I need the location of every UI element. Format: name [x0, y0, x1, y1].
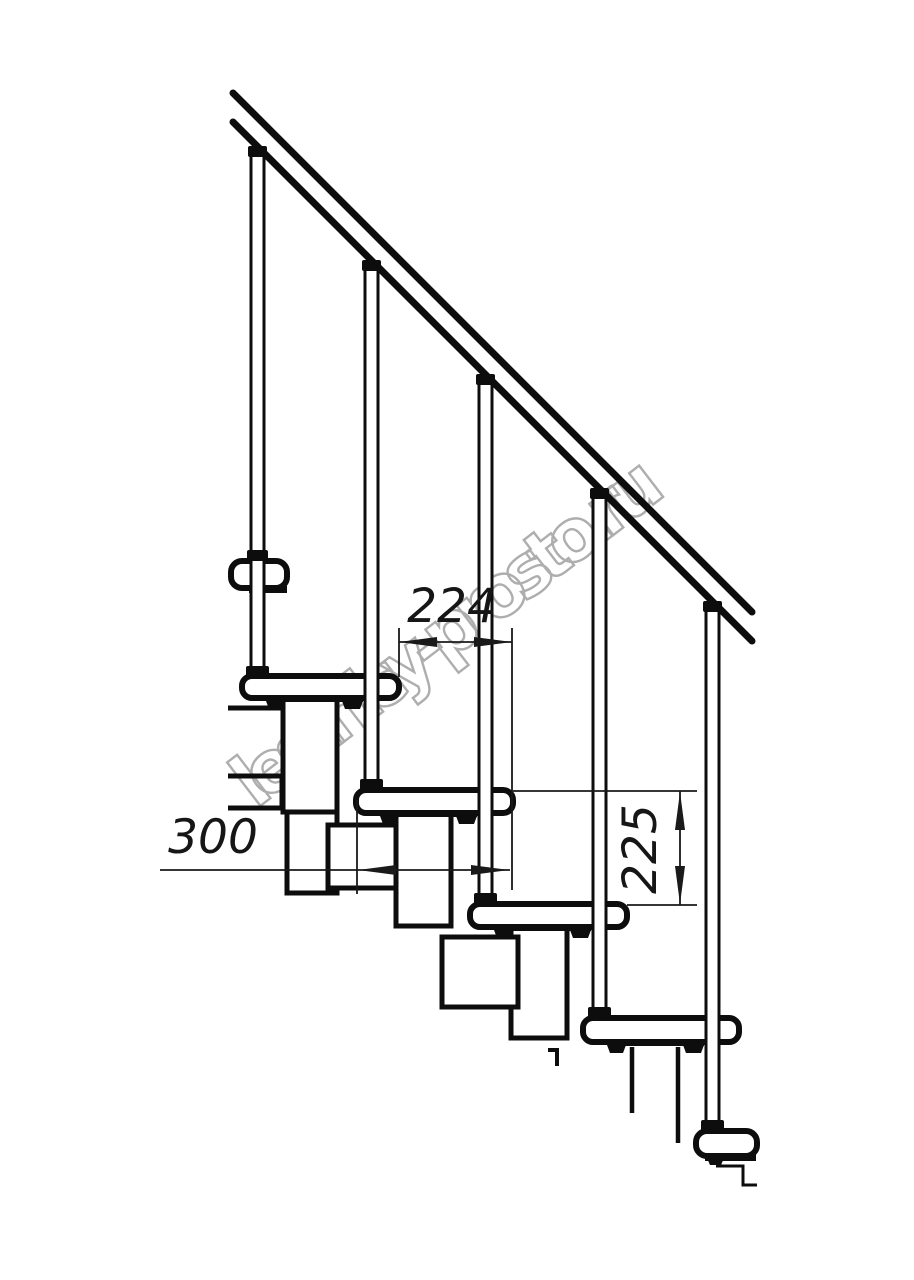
staircase-drawing: lestnicy-prosto.ru — [0, 0, 914, 1280]
dimension-225-label: 225 — [613, 804, 668, 894]
baluster-1 — [251, 150, 264, 677]
drawing-canvas: lestnicy-prosto.ru — [0, 0, 914, 1280]
floor-block — [696, 1131, 757, 1156]
baluster-5 — [706, 605, 719, 1132]
module-below-step5 — [632, 1047, 678, 1143]
dimension-224-label: 224 — [407, 579, 497, 634]
arrow-up-icon — [675, 792, 685, 830]
module-box — [442, 937, 518, 1007]
baluster-2 — [365, 264, 378, 790]
module-box — [283, 699, 337, 812]
module-box — [328, 825, 402, 888]
arrow-down-icon — [675, 866, 685, 904]
floor-edge — [716, 1166, 757, 1185]
module-hook — [548, 1050, 557, 1066]
dimension-300-label: 300 — [168, 810, 258, 865]
baluster-4 — [593, 492, 606, 1019]
